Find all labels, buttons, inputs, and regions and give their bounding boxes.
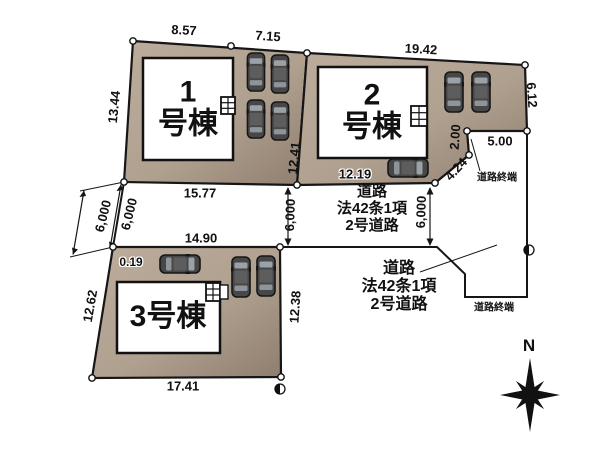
dim-plot2-notch-height: 2.00	[448, 124, 463, 150]
site-plan-drawing	[0, 0, 600, 450]
dim-plot3-bottom: 17.41	[167, 380, 200, 393]
building-3-label: 3号棟	[130, 301, 207, 333]
dim-plot2-bottom: 12.19	[339, 168, 372, 181]
entry-door-icon-3	[206, 283, 228, 301]
dim-road-width-3: 6,000	[283, 199, 297, 232]
compass-rose-icon	[500, 358, 560, 432]
entry-door-icon-1	[221, 97, 235, 114]
road-end-label-bottom: 道路終端	[474, 299, 514, 314]
road-end-label-top: 道路終端	[477, 169, 517, 184]
dim-road-top-width: 15.77	[184, 187, 217, 200]
dim-plot1-right: 12.41	[286, 141, 302, 175]
dim-road-width-4: 6,000	[414, 196, 428, 229]
site-plan: 8.57 7.15 13.44 12.41 1号棟 19.42 6.12 5.0…	[0, 0, 600, 450]
dim-plot3-offset: 0.19	[119, 256, 142, 268]
dim-plot3-right: 12.38	[287, 290, 302, 323]
compass-north-label: N	[523, 336, 535, 356]
road-label-center: 道路 法42条1項 2号道路	[337, 184, 407, 234]
building-1-label: 1号棟	[158, 77, 218, 142]
dim-plot1-top-right: 7.15	[255, 29, 281, 44]
dim-plot2-notch-width: 5.00	[487, 135, 512, 148]
building-2-label: 2号棟	[342, 80, 402, 145]
road-label-right: 道路 法42条1項 2号道路	[362, 260, 437, 314]
dim-plot1-top-left: 8.57	[171, 23, 197, 37]
dim-plot2-top: 19.42	[404, 42, 437, 57]
dim-road-bottom-width: 14.90	[185, 232, 218, 245]
dim-plot2-right: 6.12	[525, 82, 540, 108]
entry-door-icon-2	[411, 106, 427, 126]
dim-plot1-left: 13.44	[106, 90, 122, 124]
